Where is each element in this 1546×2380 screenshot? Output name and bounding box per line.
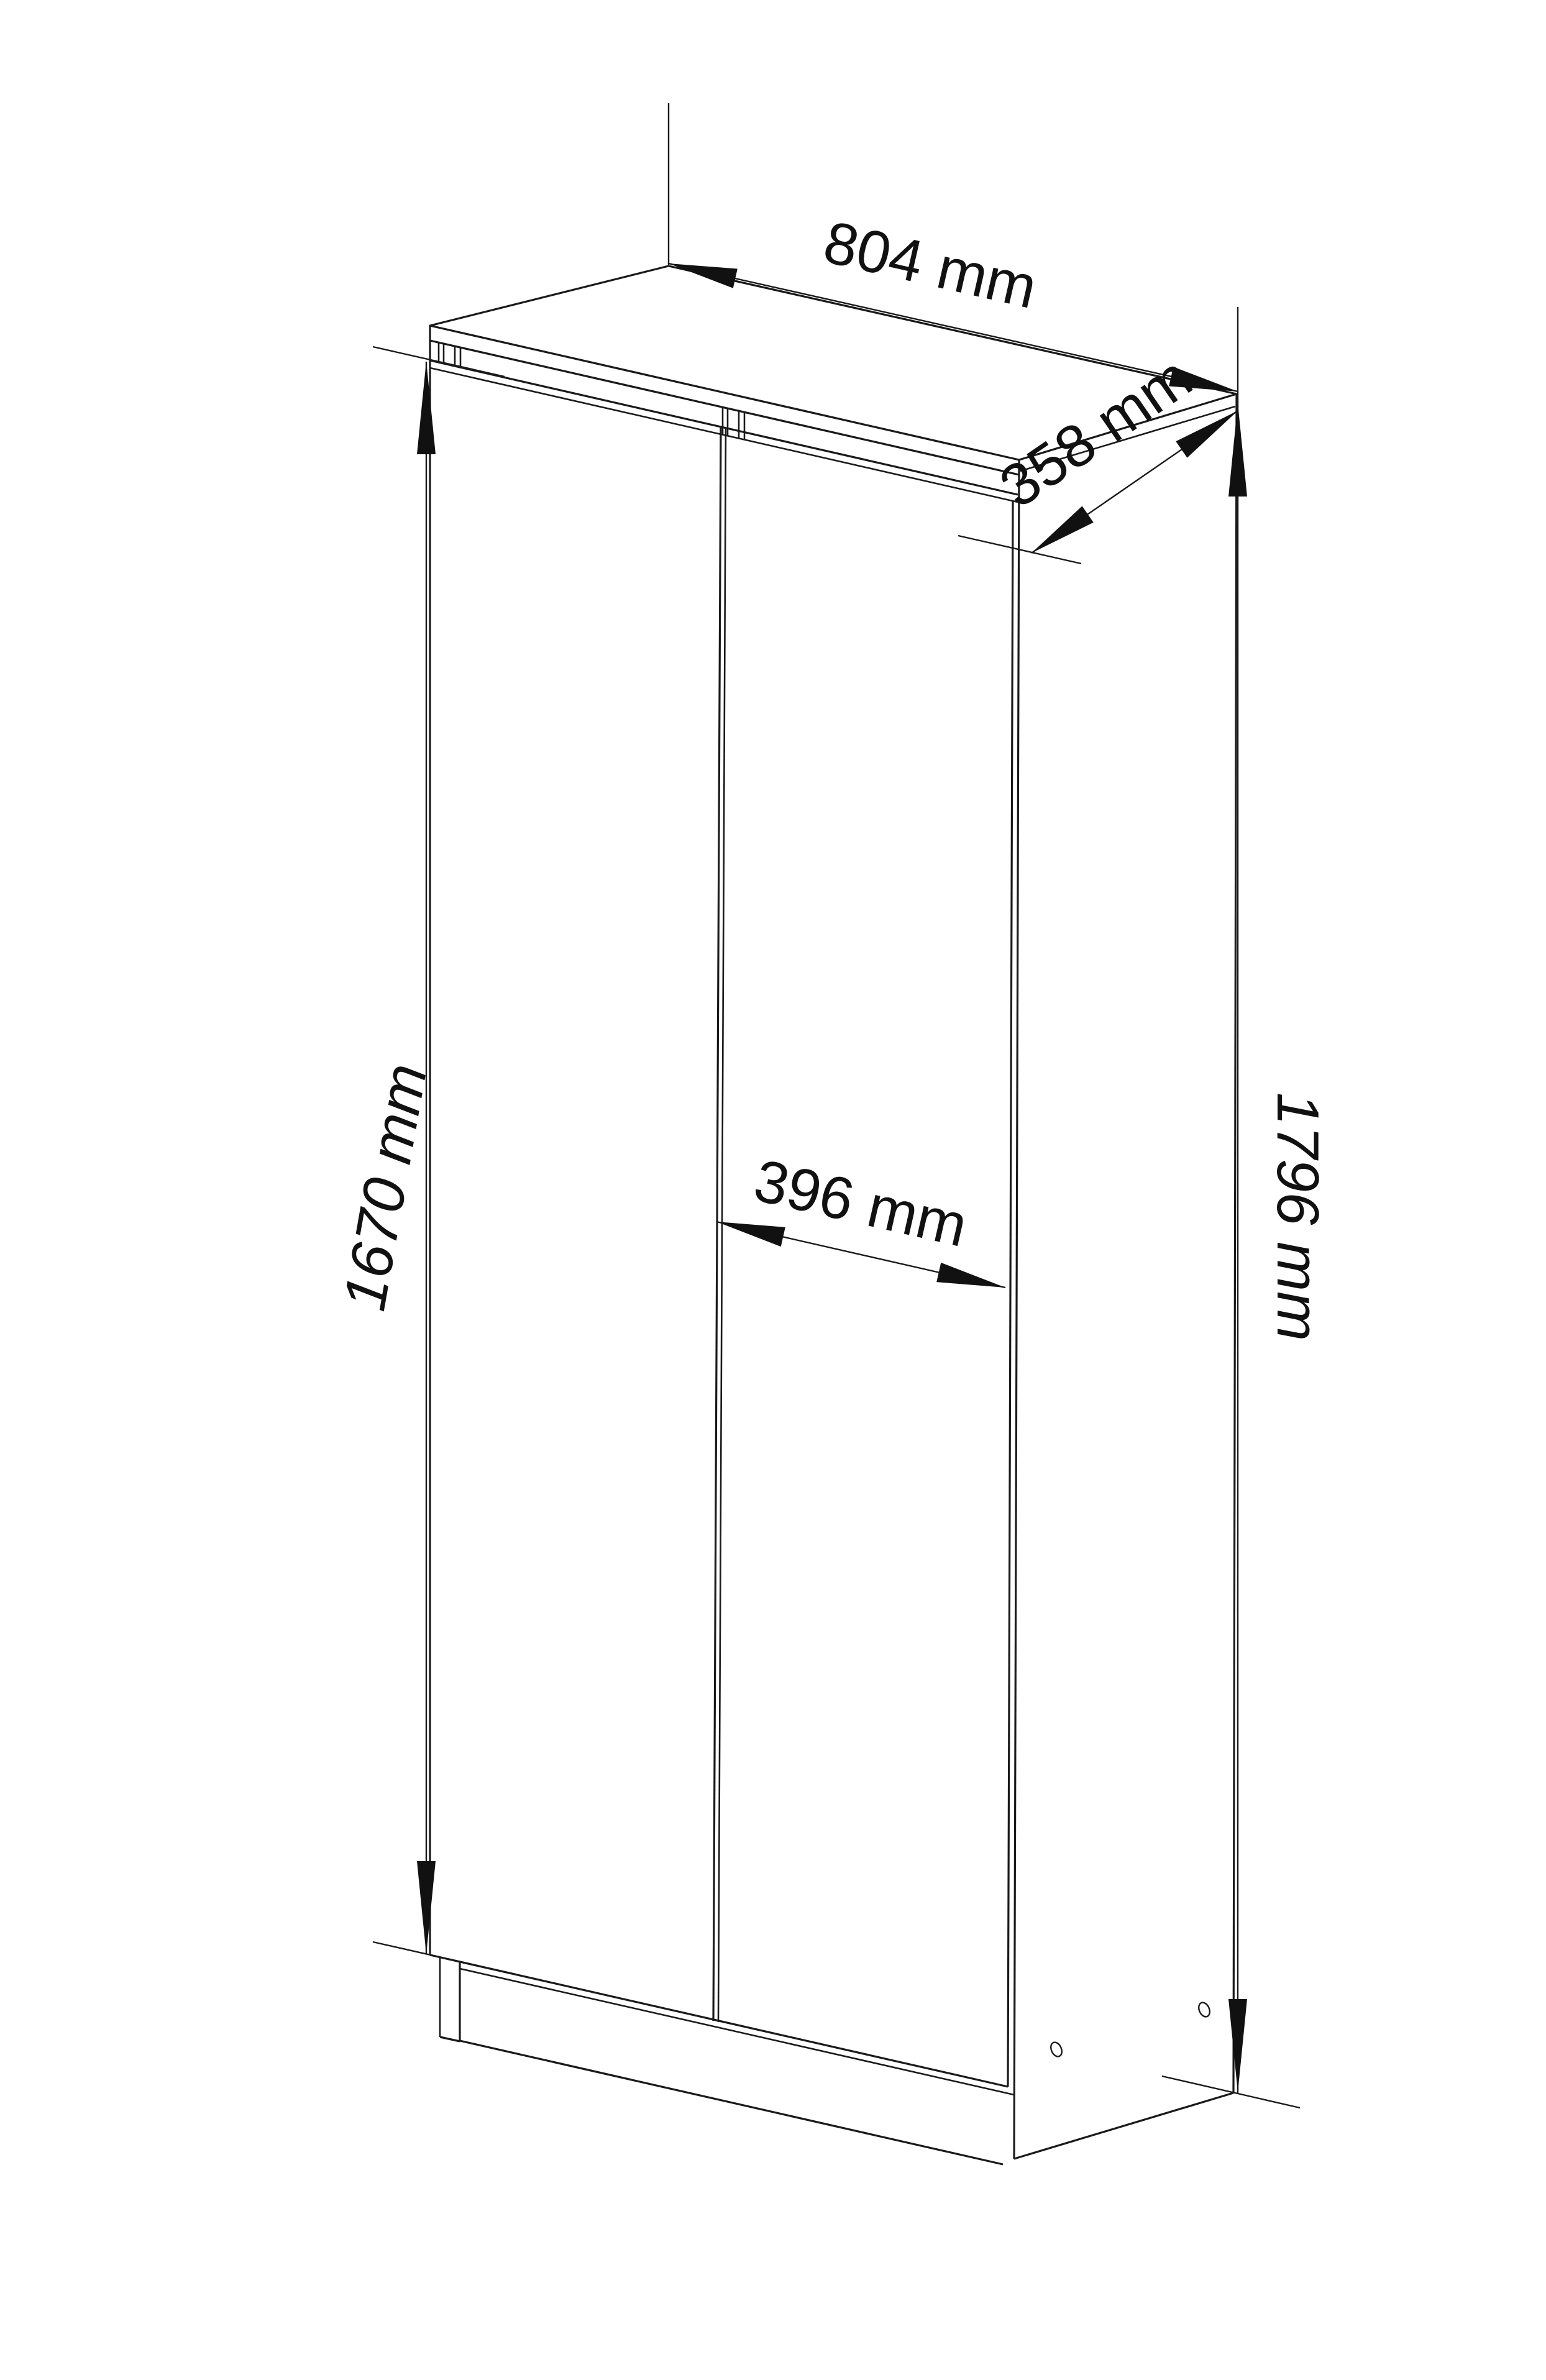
arrowhead-icon (1228, 1999, 1247, 2092)
right-door-edge (1008, 501, 1013, 2087)
dimension-door-width-label: 396 mm (748, 1147, 973, 1260)
door-top-edge-inner (430, 368, 1018, 502)
dimension-depth-label: 358 mm (988, 344, 1203, 521)
arrowhead-icon (1176, 411, 1238, 458)
arrowhead-icon (669, 263, 738, 288)
dimension-total-height-label: 1796 mm (1265, 1092, 1331, 1341)
arrowhead-icon (936, 1263, 1005, 1288)
dimension-door-width: 396 mm (716, 1147, 1005, 1288)
technical-drawing-sheet: 804 mm 358 mm 1670 mm 396 mm 1796 mm (25, 10, 1546, 2370)
dimension-width: 804 mm (669, 103, 1238, 391)
side-back-edge (1233, 394, 1237, 2093)
side-pin-hole-front (1049, 2041, 1064, 2058)
side-bottom-edge (1014, 2093, 1233, 2159)
door-top-edge (430, 360, 1018, 495)
dimension-door-height-label: 1670 mm (331, 1059, 440, 1316)
extension-line (1162, 2076, 1300, 2108)
arrowhead-icon (1228, 403, 1247, 497)
arrowhead-icon (1031, 506, 1094, 553)
plinth (440, 1957, 1014, 2164)
wardrobe-dimension-diagram: 804 mm 358 mm 1670 mm 396 mm 1796 mm (25, 10, 1546, 2370)
dimension-door-height: 1670 mm (331, 347, 516, 1974)
side-pin-hole-back (1197, 2001, 1212, 2018)
top-band-bottom-edge (430, 341, 1019, 475)
arrowhead-icon (417, 361, 436, 454)
front-right-edge (1014, 460, 1019, 2159)
extension-line (373, 1942, 516, 1974)
arrowhead-icon (417, 1861, 436, 1954)
arrowhead-icon (716, 1222, 785, 1247)
dimension-total-height: 1796 mm (1162, 307, 1331, 2108)
